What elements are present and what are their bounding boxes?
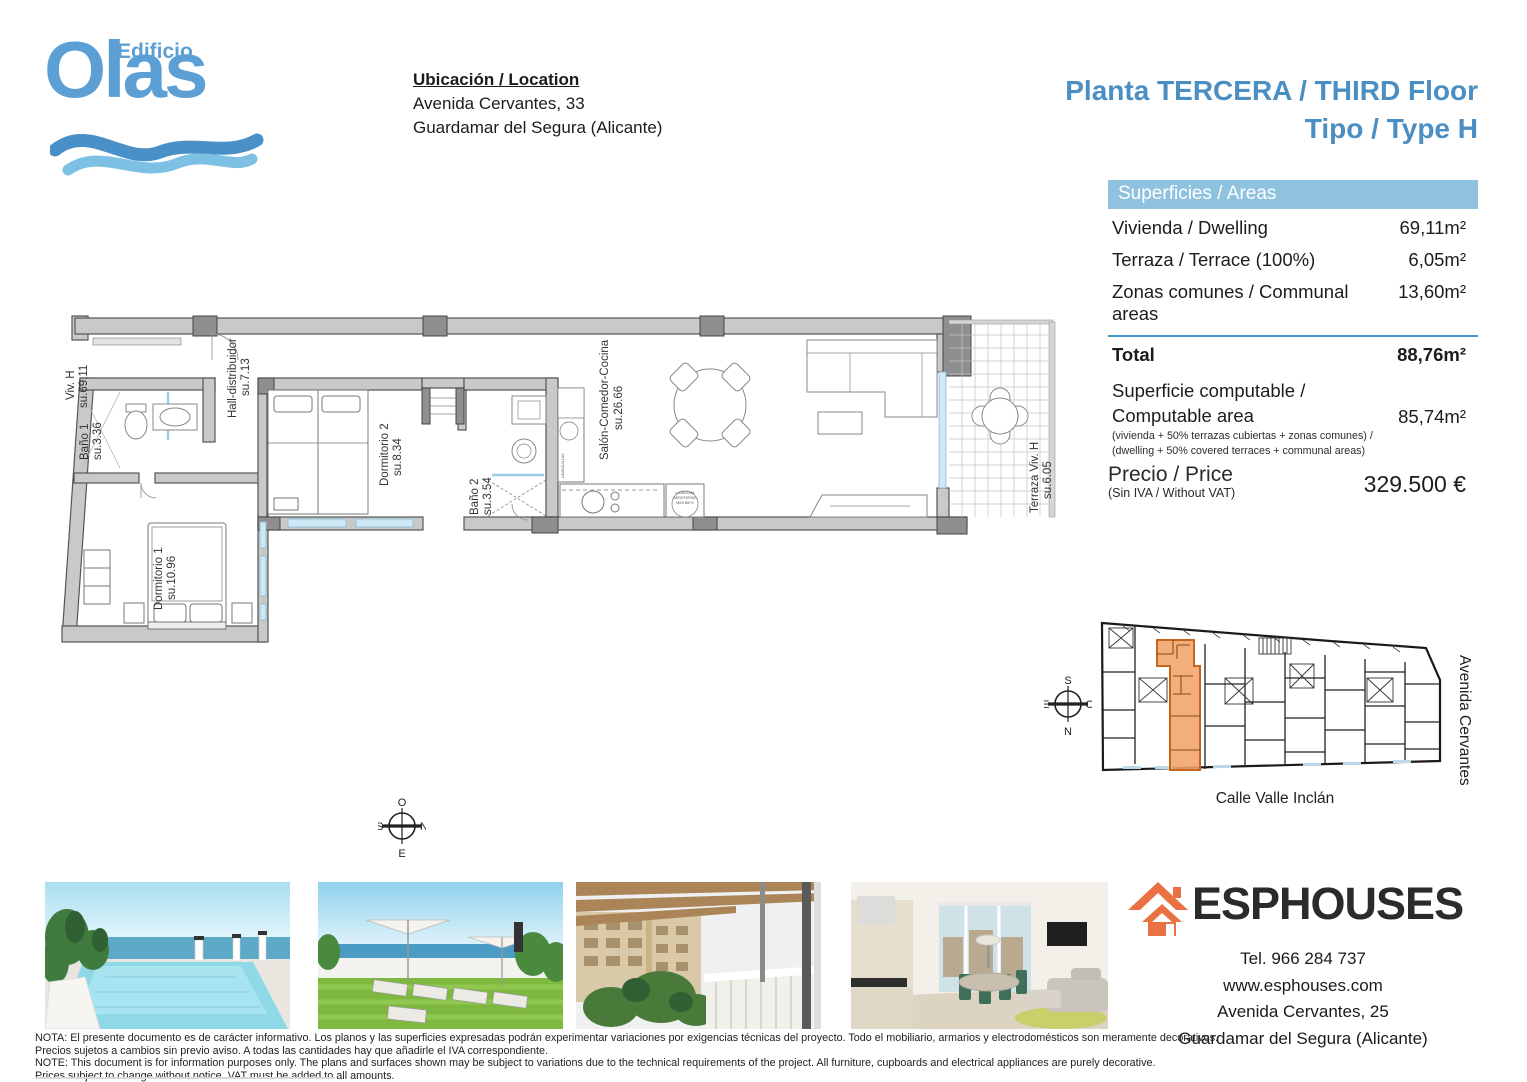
site-plan: [1093, 614, 1447, 784]
svg-text:su.3.36: su.3.36: [92, 422, 104, 460]
disclaimer-line: Prices subject to change without notice.…: [35, 1070, 1500, 1082]
svg-text:AEROTERMO: AEROTERMO: [673, 496, 696, 500]
plan-compass-icon: O S N E: [378, 796, 426, 860]
location-line2: Guardamar del Segura (Alicante): [413, 116, 662, 140]
svg-text:O: O: [398, 797, 407, 809]
bathroom2-fixtures: [488, 396, 546, 516]
computable-note2: (dwelling + 50% covered terraces + commu…: [1112, 445, 1373, 458]
svg-text:Baño 1: Baño 1: [79, 424, 91, 460]
agency-name: ESPHOUSES: [1192, 878, 1463, 930]
agency-address1: Avenida Cervantes, 25: [1128, 999, 1478, 1026]
agency-website: www.esphouses.com: [1128, 973, 1478, 1000]
price-value: 329.500 €: [1364, 471, 1478, 500]
disclaimer-line: NOTE: This document is for information p…: [35, 1057, 1500, 1070]
olas-logo-waves-icon: [50, 128, 265, 190]
living-furniture: [668, 340, 937, 517]
area-label: Vivienda / Dwelling: [1112, 217, 1268, 239]
title-line1: Planta TERCERA / THIRD Floor: [1065, 72, 1478, 110]
apartment-floorplan: Viv. Hsu.69.11 Baño 1su.3.36 Hall-distri…: [60, 308, 1060, 658]
computable-value: 85,74m²: [1398, 406, 1466, 458]
svg-text:MINI BIE K: MINI BIE K: [676, 501, 694, 505]
price-block: Precio / Price (Sin IVA / Without VAT) 3…: [1108, 463, 1478, 500]
photo-interior-living: [851, 882, 1108, 1029]
price-note: (Sin IVA / Without VAT): [1108, 486, 1235, 500]
area-row-computable: Superficie computable / Computable area …: [1108, 368, 1478, 458]
street-label-right: Avenida Cervantes: [1455, 655, 1473, 795]
svg-text:N: N: [1064, 726, 1072, 738]
area-label: Zonas comunes / Communal areas: [1112, 281, 1398, 325]
svg-text:Terraza Viv. H: Terraza Viv. H: [1029, 442, 1041, 513]
site-compass-icon: S E O N: [1044, 674, 1092, 738]
location-heading: Ubicación / Location: [413, 68, 662, 92]
area-value: 13,60m²: [1398, 281, 1466, 325]
areas-panel: Superficies / Areas Vivienda / Dwelling …: [1108, 180, 1478, 458]
svg-text:Baño 2: Baño 2: [469, 479, 481, 515]
bedroom2-furniture: [268, 390, 368, 514]
page-title: Planta TERCERA / THIRD Floor Tipo / Type…: [1065, 72, 1478, 148]
total-value: 88,76m²: [1397, 344, 1466, 366]
svg-text:N: N: [420, 821, 426, 833]
area-value: 6,05m²: [1408, 249, 1466, 271]
svg-text:LAVADORA: LAVADORA: [675, 491, 695, 495]
computable-label2: Computable area: [1112, 403, 1373, 428]
svg-text:su.10.96: su.10.96: [166, 556, 178, 600]
photo-rooftop-terrace: [318, 882, 563, 1029]
wardrobe: [430, 398, 456, 414]
svg-text:E: E: [398, 848, 405, 860]
svg-text:su.69.11: su.69.11: [78, 365, 90, 408]
svg-text:LAVAVAJILLAS: LAVAVAJILLAS: [561, 453, 565, 478]
title-line2: Tipo / Type H: [1065, 110, 1478, 148]
svg-text:Dormitorio 2: Dormitorio 2: [379, 423, 391, 486]
entry-shelf: [93, 338, 181, 345]
disclaimer-line: NOTA: El presente documento es de caráct…: [35, 1032, 1500, 1045]
total-label: Total: [1112, 344, 1155, 366]
edificio-logo-text: Edificio: [117, 40, 193, 64]
area-label: Terraza / Terrace (100%): [1112, 249, 1315, 271]
esphouses-logo-icon: [1128, 876, 1188, 938]
computable-label1: Superficie computable /: [1112, 378, 1373, 403]
area-row-terrace: Terraza / Terrace (100%) 6,05m²: [1108, 241, 1478, 273]
svg-text:S: S: [1064, 675, 1071, 687]
svg-text:su.3.54: su.3.54: [482, 477, 494, 515]
svg-text:su.6.05: su.6.05: [1042, 461, 1054, 499]
svg-text:Dormitorio 1: Dormitorio 1: [153, 547, 165, 610]
svg-text:su.7.13: su.7.13: [240, 358, 252, 396]
svg-text:E: E: [1044, 699, 1049, 711]
brochure-page: { "colors":{ "accent":"#4a8ec2","table_h…: [0, 0, 1527, 1080]
svg-text:su.26.66: su.26.66: [613, 386, 625, 430]
location-block: Ubicación / Location Avenida Cervantes, …: [413, 68, 662, 140]
svg-text:Hall-distribuidor: Hall-distribuidor: [227, 338, 239, 418]
location-line1: Avenida Cervantes, 33: [413, 92, 662, 116]
disclaimer-line: Precios sujetos a cambios sin previo avi…: [35, 1045, 1500, 1058]
svg-text:Salón-Comedor-Cocina: Salón-Comedor-Cocina: [599, 339, 611, 460]
area-row-total: Total 88,76m²: [1108, 335, 1478, 368]
area-row-communal: Zonas comunes / Communal areas 13,60m²: [1108, 273, 1478, 327]
street-label-bottom: Calle Valle Inclán: [1150, 790, 1400, 808]
area-value: 69,11m²: [1400, 217, 1467, 239]
svg-text:Viv. H: Viv. H: [65, 370, 77, 400]
disclaimer-block: NOTA: El presente documento es de caráct…: [35, 1032, 1500, 1082]
svg-text:S: S: [378, 821, 383, 833]
svg-text:su.8.34: su.8.34: [392, 438, 404, 476]
photo-balcony-view: [576, 882, 821, 1029]
areas-header: Superficies / Areas: [1108, 180, 1478, 209]
computable-note1: (vivienda + 50% terrazas cubiertas + zon…: [1112, 430, 1373, 443]
photo-rooftop-pool: [45, 882, 290, 1029]
cutoff-text-artifact: [35, 1077, 335, 1079]
svg-text:O: O: [1085, 699, 1092, 711]
agency-phone: Tel. 966 284 737: [1128, 946, 1478, 973]
area-row-dwelling: Vivienda / Dwelling 69,11m²: [1108, 209, 1478, 241]
price-label: Precio / Price: [1108, 463, 1235, 486]
